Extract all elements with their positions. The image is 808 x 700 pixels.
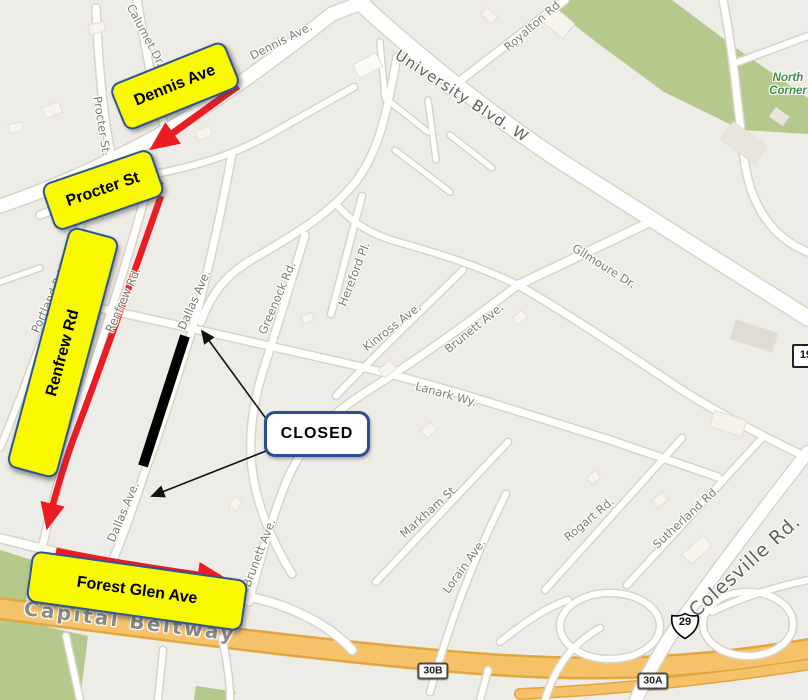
md-193-shield: 193 [792, 344, 808, 368]
road-northeast [738, 36, 808, 62]
us-29-shield: 29 [669, 612, 701, 640]
closed-callout-box: CLOSED [264, 411, 370, 457]
road-gilmoure-dr [518, 222, 650, 285]
detour-map: Calumet Dr. Dennis Ave. Procter St. Roya… [0, 0, 808, 700]
closed-road-segment [143, 336, 185, 466]
road-connector-northwest [338, 206, 518, 285]
road-greenock-rd [251, 235, 305, 574]
road-dallas-ave [111, 153, 232, 564]
road-lanark-wy [103, 309, 718, 477]
park-area [558, 0, 808, 134]
road-grid [395, 150, 450, 192]
road-dallas-ave [111, 153, 232, 564]
road-grid [385, 98, 428, 132]
detour-label-procter-st-text: Procter St [64, 169, 142, 211]
ramp-cloverleaf [703, 592, 793, 656]
place-label-north-corner: North Corner [760, 72, 808, 97]
road-markham-st [376, 442, 508, 582]
detour-label-renfrew-rd-text: Renfrew Rd [43, 307, 83, 398]
detour-label-forest-glen-ave-text: Forest Glen Ave [76, 574, 199, 609]
exit-sign-30a: 30A [637, 673, 668, 690]
closed-callout-text: CLOSED [281, 425, 354, 443]
place-label-line2: Corner [769, 85, 807, 97]
exit-sign-30b: 30B [417, 663, 448, 680]
us-29-shield-number: 29 [669, 616, 701, 628]
road-sutherland-rd [627, 438, 762, 585]
road-grid [450, 135, 492, 168]
road-stub-west [0, 268, 40, 282]
place-label-line1: North [773, 72, 804, 84]
